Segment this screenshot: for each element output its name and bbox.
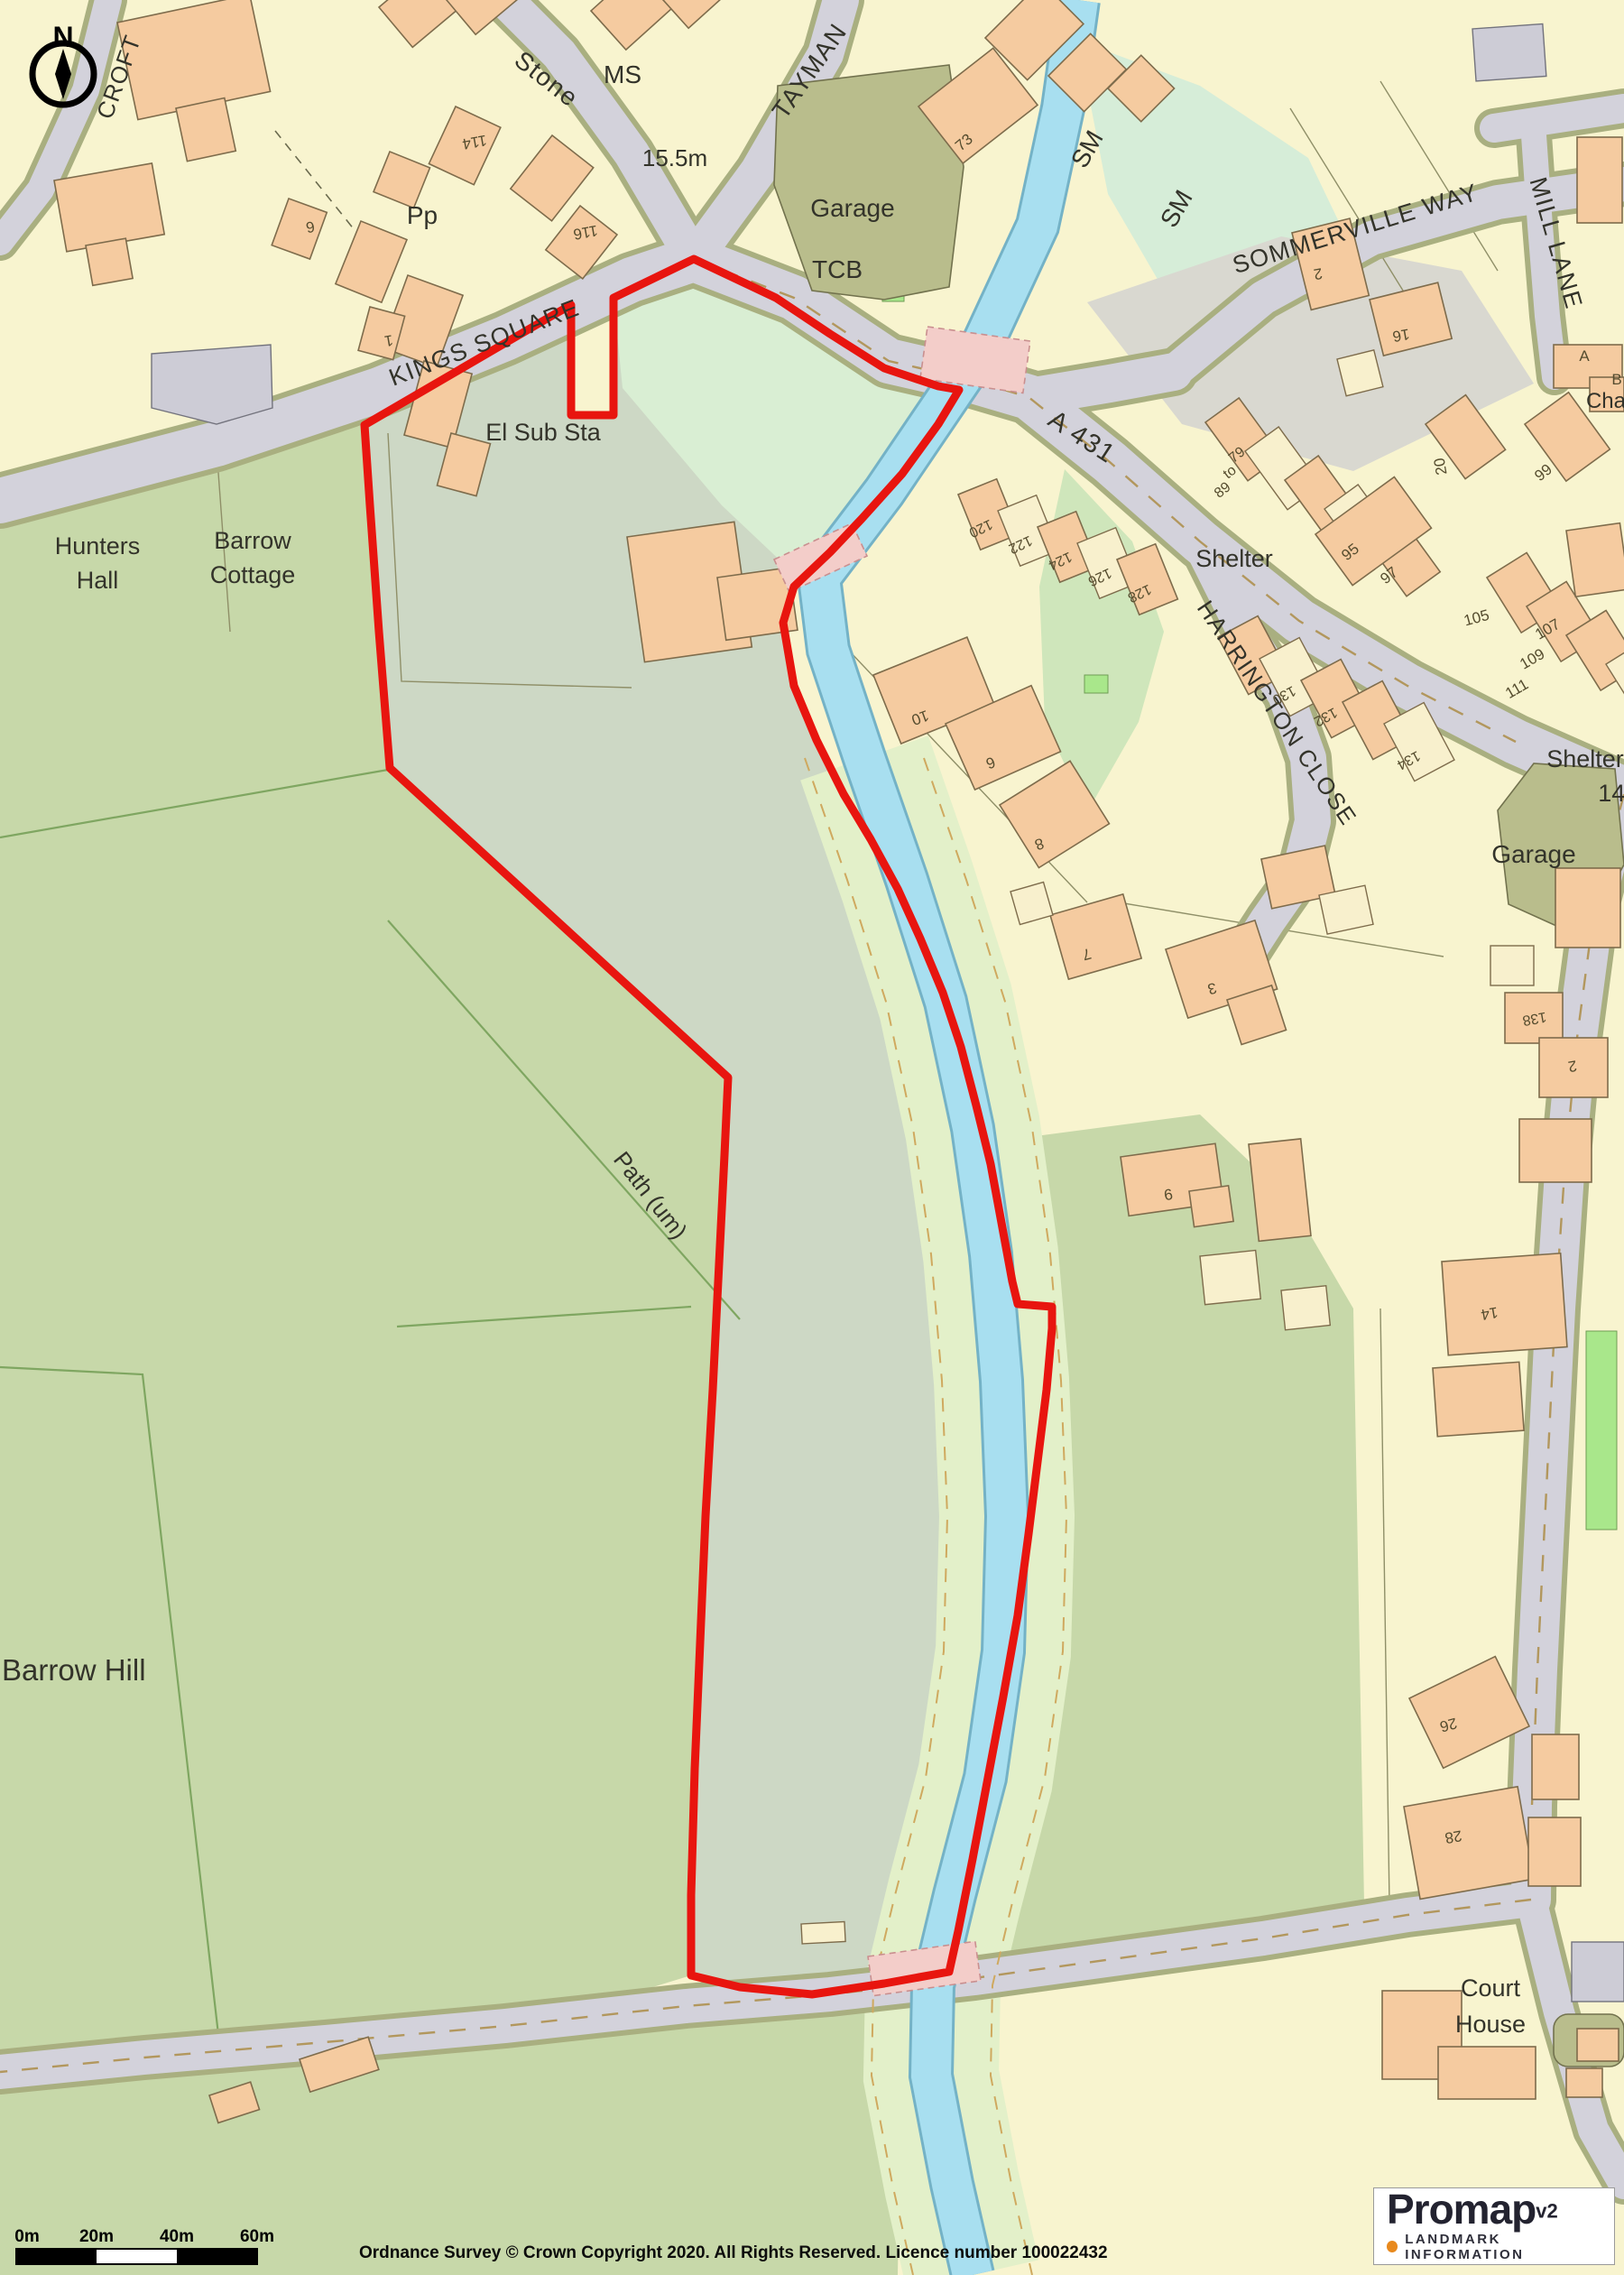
map-label: A (1579, 347, 1590, 365)
map-label: 28 (1444, 1826, 1463, 1846)
compass-n-label: N (52, 21, 73, 53)
map-label: 40m (160, 2227, 194, 2246)
map-label: Shelter (1195, 545, 1273, 572)
map-label: Shelter (1546, 745, 1624, 772)
map-label: House (1455, 2011, 1526, 2038)
map-label: El Sub Sta (485, 419, 602, 446)
map-label: TCB (812, 255, 863, 283)
map-label: Pp (407, 201, 438, 229)
map-label: Hunters (55, 532, 141, 560)
map-label: 20m (79, 2227, 114, 2246)
map-label: Chapel (1586, 389, 1624, 413)
map-label: Barrow (214, 527, 291, 554)
map-label: 15.5m (642, 144, 707, 171)
map-label: Garage (810, 194, 894, 222)
map-label: Court (1461, 1974, 1521, 2002)
map-label: 20 (1431, 457, 1451, 476)
map-label: Barrow Hill (2, 1653, 146, 1687)
promap-logo: Promapv2 LANDMARK INFORMATION (1373, 2187, 1615, 2265)
attribution-text: Ordnance Survey © Crown Copyright 2020. … (359, 2243, 1108, 2263)
scale-bar (16, 2249, 257, 2264)
map-label: B (1611, 371, 1621, 388)
map-label: Hall (77, 567, 119, 594)
map-label: MS (604, 60, 641, 88)
map-label: 14. (1598, 780, 1624, 807)
map-label: 60m (240, 2227, 274, 2246)
logo-version: v2 (1536, 2199, 1557, 2222)
logo-subtitle: LANDMARK INFORMATION (1405, 2232, 1614, 2262)
map-label: 0m (14, 2227, 39, 2246)
logo-brand: Promap (1387, 2186, 1536, 2233)
logo-dot-icon (1387, 2241, 1398, 2252)
map-svg: N CROFTStoneMS15.5mTAYMANGarageTCBSMSMSO… (0, 0, 1624, 2275)
map-canvas[interactable]: N CROFTStoneMS15.5mTAYMANGarageTCBSMSMSO… (0, 0, 1624, 2275)
map-label: 14 (1480, 1303, 1499, 1323)
map-label: Cottage (210, 561, 296, 588)
map-label: 16 (1391, 325, 1411, 345)
map-label: Garage (1491, 840, 1575, 868)
